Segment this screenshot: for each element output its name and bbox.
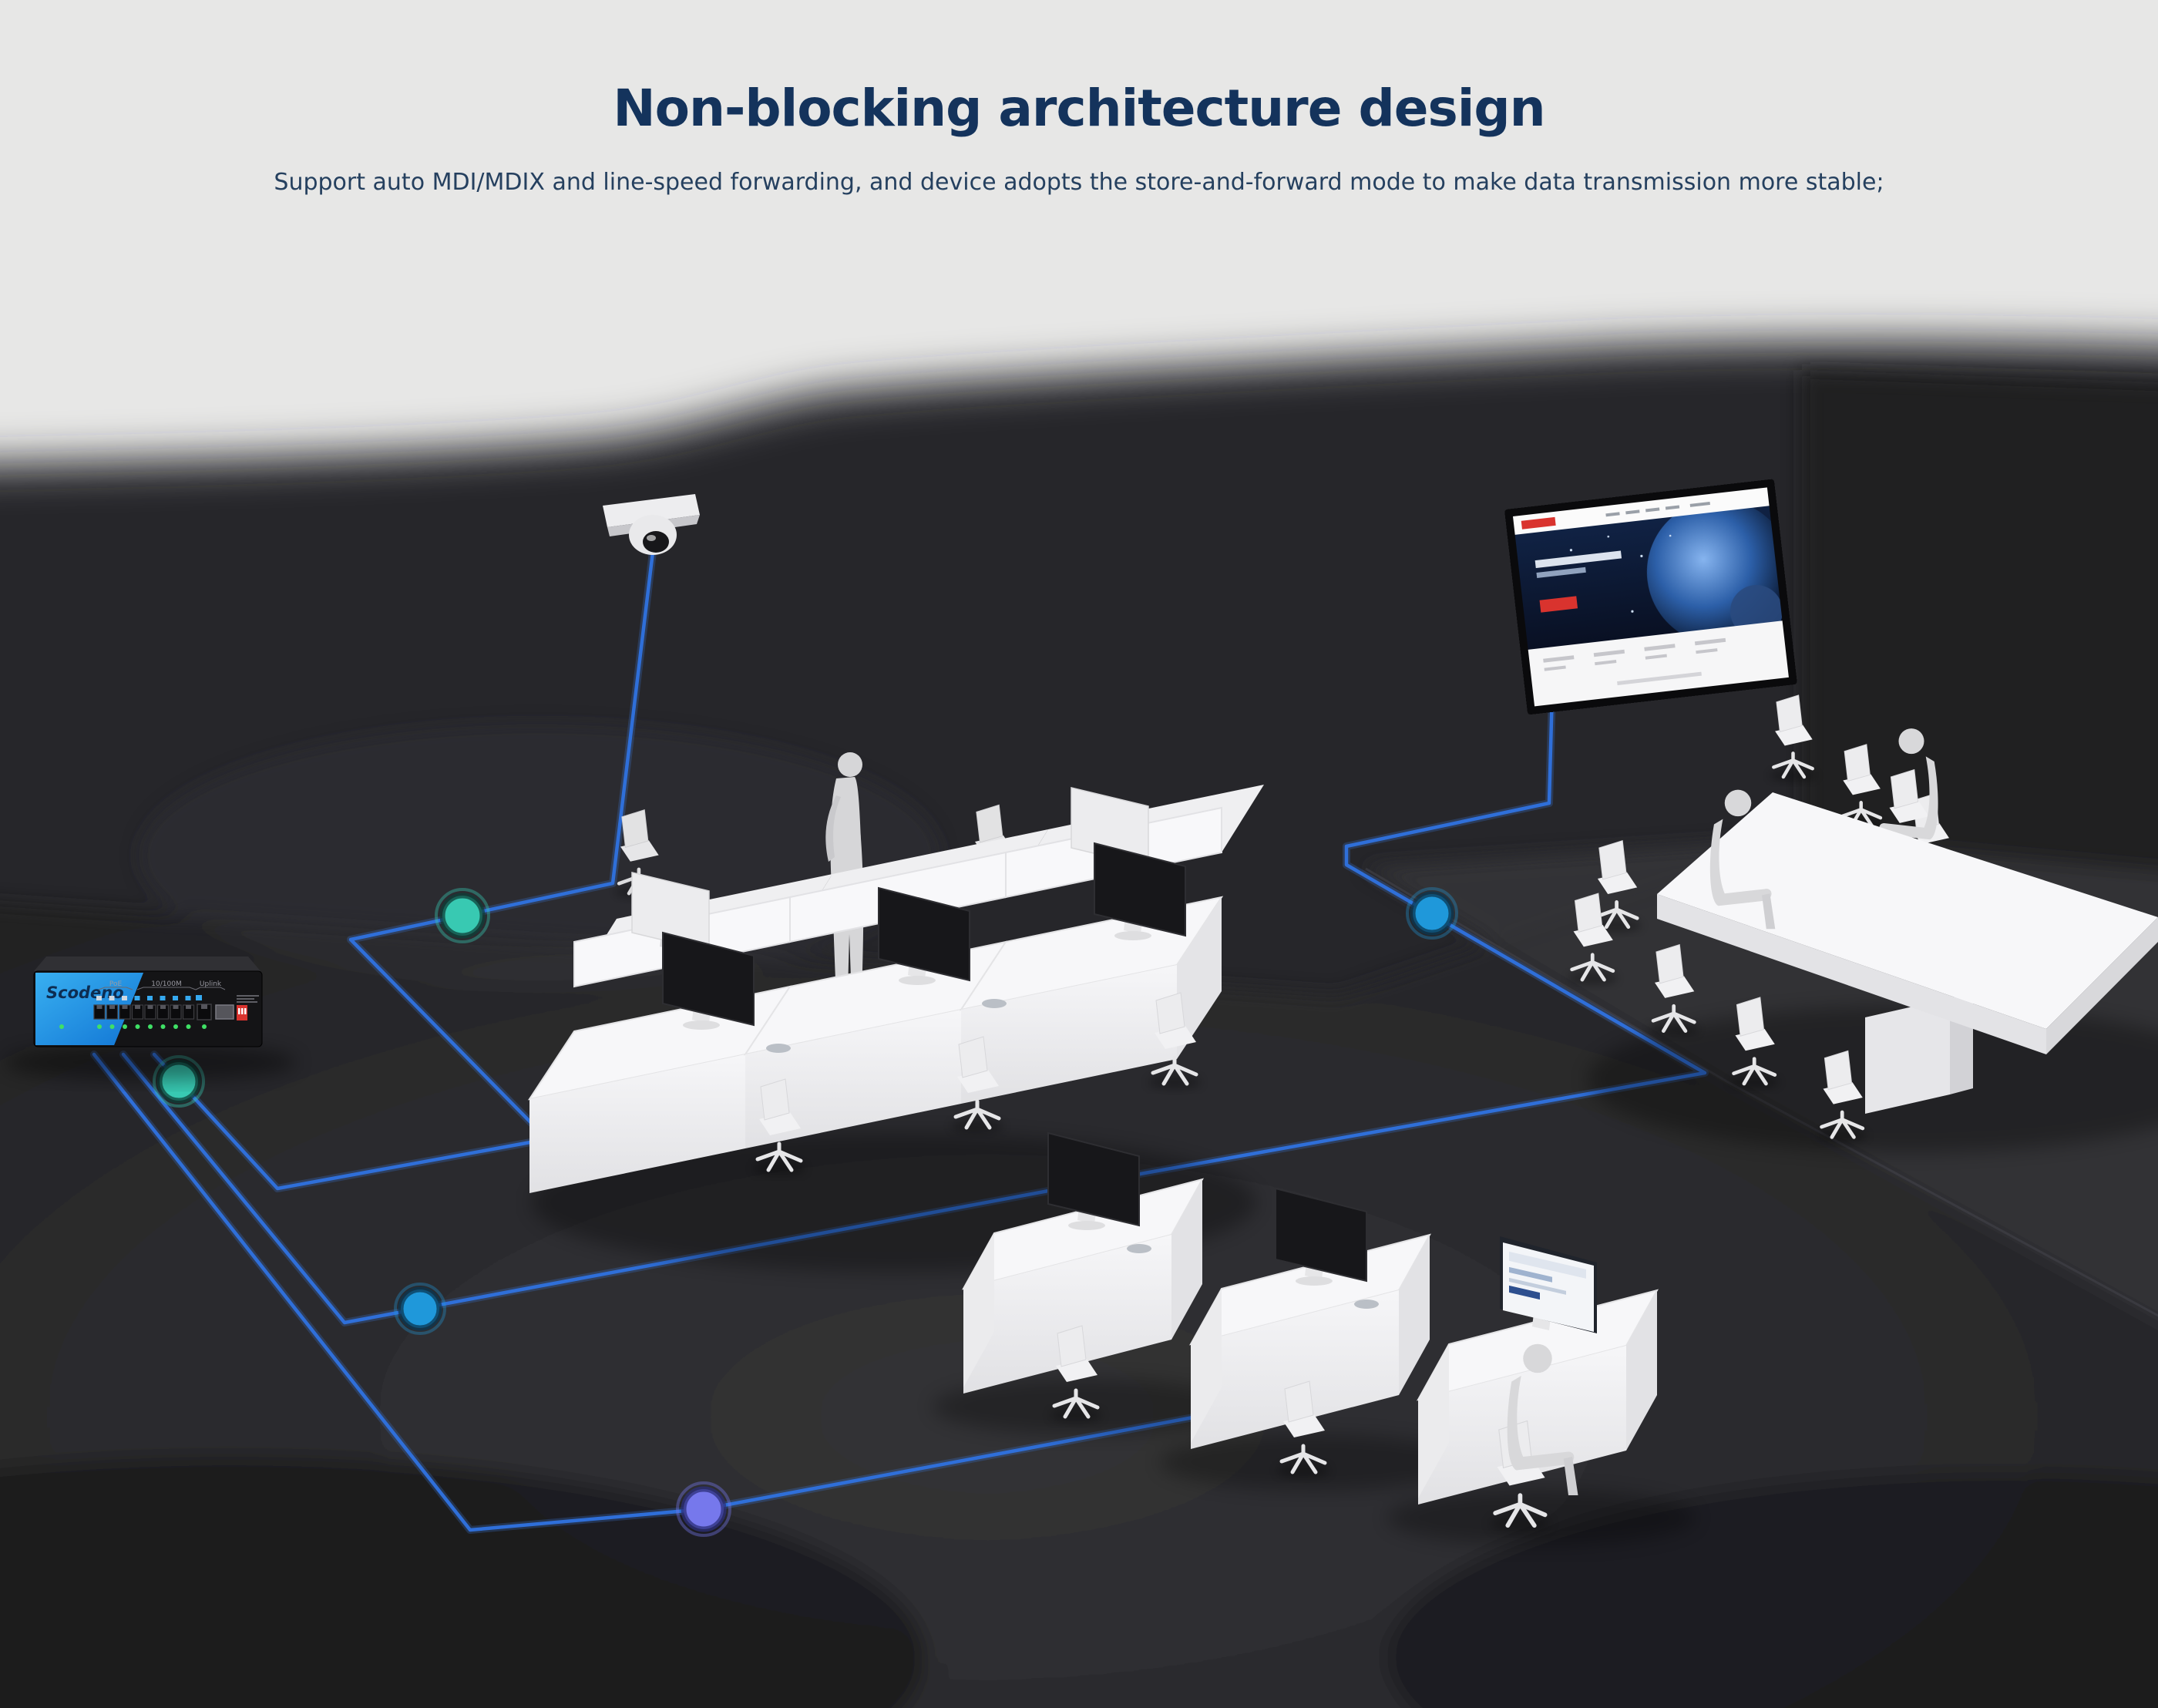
page-subtitle: Support auto MDI/MDIX and line-speed for… [0, 169, 2158, 196]
svg-text:Uplink: Uplink [200, 980, 222, 988]
node-teal-1 [436, 889, 489, 942]
svg-text:PoE: PoE [109, 980, 123, 988]
wall-display [1504, 478, 1805, 714]
display-webpage [1513, 486, 1804, 706]
node-purple [677, 1483, 730, 1535]
power-led [59, 1024, 64, 1029]
sfp-slot [216, 1005, 234, 1019]
section-header: Non-blocking architecture design Support… [0, 0, 2158, 196]
svg-text:10/100M: 10/100M [151, 980, 181, 988]
poe-switch: Scodeno PoE 10/100M Uplink [4, 957, 297, 1081]
page-title: Non-blocking architecture design [0, 79, 2158, 138]
page: Non-blocking architecture design Support… [0, 0, 2158, 1708]
camera-lens [643, 531, 669, 553]
office-network-illustration: Scodeno PoE 10/100M Uplink [0, 0, 2158, 1708]
node-blue-1 [395, 1284, 445, 1333]
node-blue-3 [1407, 889, 1457, 938]
